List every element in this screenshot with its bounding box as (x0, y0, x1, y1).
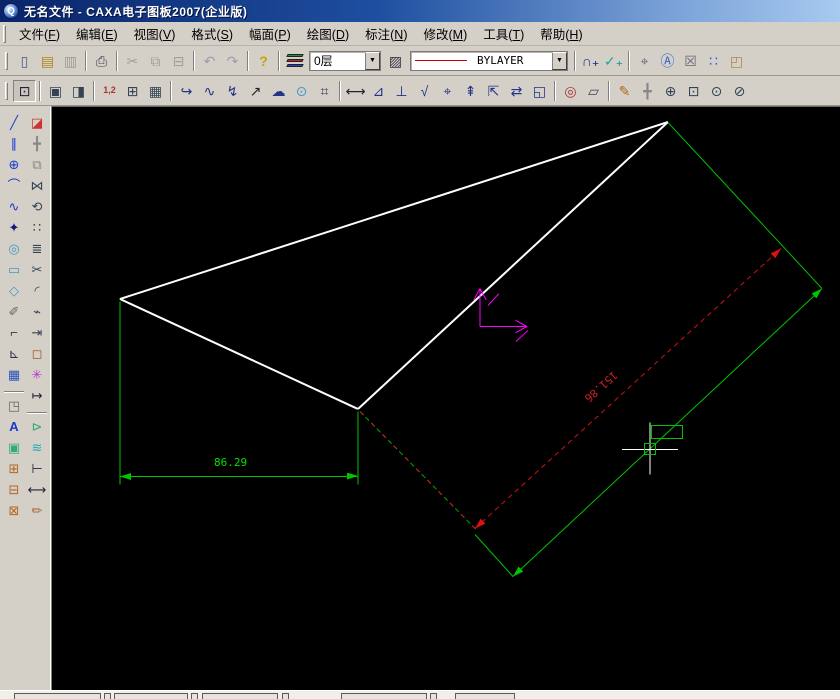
mirror-tool-button[interactable]: ⋈ (26, 175, 48, 196)
app-icon: Q (3, 3, 19, 19)
trim-tool-button[interactable]: ✂ (26, 259, 48, 280)
block-tool-button[interactable]: ▣ (3, 437, 25, 458)
toolbar-separator (93, 81, 95, 101)
menu-format[interactable]: 格式(S) (183, 21, 241, 46)
tool-group-separator (27, 406, 47, 413)
block-move-tool-button[interactable]: ⊳ (26, 416, 48, 437)
layer-change-tool-button[interactable]: ≋ (26, 437, 48, 458)
menu-view[interactable]: 视图(V) (126, 21, 184, 46)
zoom-check-button[interactable]: ◎ (559, 80, 582, 102)
linear-dim-button[interactable]: ⟷ (344, 80, 367, 102)
arrow-tool-button[interactable]: ↗ (244, 80, 267, 102)
zoom-in-button[interactable]: ⊕ (659, 80, 682, 102)
status-button[interactable] (430, 693, 437, 699)
dim-style-button[interactable]: 1,2 (98, 80, 121, 102)
page-preview-button[interactable]: ◰ (725, 50, 748, 72)
toolbar-separator (247, 51, 249, 71)
toolbar-separator (39, 81, 41, 101)
section-symbol-button[interactable]: ⇱ (482, 80, 505, 102)
stretch-tool-button[interactable]: ↦ (26, 385, 48, 406)
toolbar-separator (628, 51, 630, 71)
modify-tool-column: ◪╋⧉⋈⟲∷≣✂◜⌁⇥◻✳↦⊳≋⊢⟷✏ (26, 112, 48, 690)
sketch-pen-button[interactable]: ✎ (613, 80, 636, 102)
status-button[interactable] (104, 693, 111, 699)
status-button[interactable] (202, 693, 278, 699)
menu-help[interactable]: 帮助(H) (532, 21, 590, 46)
menu-tools[interactable]: 工具(T) (475, 21, 532, 46)
pick-box (644, 443, 656, 455)
zoom-window-button[interactable]: ⊡ (682, 80, 705, 102)
window-title: 无名文件 - CAXA电子图板2007(企业版) (24, 3, 247, 20)
fit-view-button[interactable]: ⊡ (13, 80, 36, 102)
toolbar-separator (608, 81, 610, 101)
save-file-button[interactable]: ▥ (59, 50, 82, 72)
menu-items: 文件(F)编辑(E)视图(V)格式(S)幅面(P)绘图(D)标注(N)修改(M)… (11, 21, 591, 46)
layer-combo-value: 0层 (310, 52, 365, 69)
sheet-button[interactable]: ▦ (144, 80, 167, 102)
parallel-line-tool-button[interactable]: ∥ (3, 133, 25, 154)
toolbar-separator (170, 81, 172, 101)
arc-tool-button[interactable]: ⌒ (3, 175, 25, 196)
drawing-canvas[interactable]: 86.29151.86 (52, 106, 840, 690)
roughness-button[interactable]: √ (413, 80, 436, 102)
status-button[interactable] (114, 693, 188, 699)
axis-tick-stroke[interactable] (488, 293, 500, 306)
menubar-grip[interactable] (3, 25, 6, 43)
weld-symbol-button[interactable]: ⇞ (459, 80, 482, 102)
ellipse-tool-button[interactable]: ◎ (3, 238, 25, 259)
toolbar-separator (339, 81, 341, 101)
fillet-tool-button[interactable]: ◜ (26, 280, 48, 301)
tool-group-separator (4, 385, 24, 392)
linetype-combo[interactable]: BYLAYER▼ (410, 51, 568, 71)
layer-manager-button[interactable] (283, 50, 306, 72)
block-create-tool-button[interactable]: ⊞ (3, 458, 25, 479)
dim-arrow-left (120, 473, 131, 480)
text-tool-button[interactable]: A (3, 416, 25, 437)
rectangle-tool-button[interactable]: ▭ (3, 259, 25, 280)
status-button[interactable] (282, 693, 289, 699)
toolbar2-grip[interactable] (5, 82, 8, 100)
erase-tool-button[interactable]: ◪ (26, 112, 48, 133)
hatch-pen-tool-button[interactable]: ✐ (3, 301, 25, 322)
rotate-tool-button[interactable]: ⟲ (26, 196, 48, 217)
status-button[interactable] (341, 693, 427, 699)
measure-button[interactable]: ▱ (582, 80, 605, 102)
axis-marker-horizontal[interactable] (480, 326, 527, 327)
zigzag-line-button[interactable]: ↯ (221, 80, 244, 102)
polyline-hook-button[interactable]: ↪ (175, 80, 198, 102)
point-tool-button[interactable]: ✦ (3, 217, 25, 238)
mixed-dash-extension[interactable] (360, 411, 478, 531)
zoom-text-button[interactable]: Ⓐ (656, 50, 679, 72)
toolbar-separator (574, 51, 576, 71)
menu-paper[interactable]: 幅面(P) (241, 21, 299, 46)
circle-tool-button[interactable]: ⊕ (3, 154, 25, 175)
node-edit-button[interactable]: ∩₊ (579, 50, 602, 72)
align-dim-tool-button[interactable]: ⊢ (26, 458, 48, 479)
title-block-button[interactable]: ◨ (67, 80, 90, 102)
open-file-button[interactable]: ▤ (36, 50, 59, 72)
new-file-button[interactable]: ▯ (13, 50, 36, 72)
toolbar-separator (116, 51, 118, 71)
frame-settings-button[interactable]: ▣ (44, 80, 67, 102)
toolbar1-grip[interactable] (5, 52, 8, 70)
copy-tool-button[interactable]: ⧉ (26, 154, 48, 175)
axis-marker-vertical[interactable] (480, 288, 481, 326)
left-tool-panel: ╱∥⊕⌒∿✦◎▭◇✐⌐⊾▦◳A▣⊞⊟⊠ ◪╋⧉⋈⟲∷≣✂◜⌁⇥◻✳↦⊳≋⊢⟷✏ (0, 106, 52, 690)
triangle-edge-left[interactable] (120, 298, 359, 410)
linetype-combo-dropdown-button[interactable]: ▼ (552, 52, 567, 70)
dim-edit-button[interactable]: ⇄ (505, 80, 528, 102)
help-button[interactable]: ? (252, 50, 275, 72)
symbol-tool-button[interactable]: ⌗ (313, 80, 336, 102)
print-button[interactable]: ⎙ (90, 50, 113, 72)
array-tool-button[interactable]: ∷ (26, 217, 48, 238)
undo-button[interactable]: ↶ (198, 50, 221, 72)
cloud-line-button[interactable]: ☁ (267, 80, 290, 102)
dim-text-preview-box[interactable] (651, 425, 683, 439)
status-button[interactable] (14, 693, 101, 699)
offset-tool-button[interactable]: ≣ (26, 238, 48, 259)
zoom-prev-button[interactable]: ⊙ (705, 80, 728, 102)
linetype-combo-value: BYLAYER (473, 54, 552, 67)
tolerance-button[interactable]: ⌖ (436, 80, 459, 102)
menu-draw[interactable]: 绘图(D) (299, 21, 357, 46)
layer-combo-dropdown-button[interactable]: ▼ (365, 52, 380, 70)
polygon-tool-button[interactable]: ◇ (3, 280, 25, 301)
spline-tool-button[interactable]: ∿ (3, 196, 25, 217)
dim-text-horizontal[interactable]: 86.29 (214, 456, 247, 469)
menu-file[interactable]: 文件(F) (11, 21, 68, 46)
toolbar-separator (554, 81, 556, 101)
redo-button[interactable]: ↷ (221, 50, 244, 72)
pan-hand-button[interactable]: ╋ (636, 80, 659, 102)
paste-button[interactable]: ⊟ (167, 50, 190, 72)
vector-edit-button[interactable]: ✓₊ (602, 50, 625, 72)
wave-line-button[interactable]: ∿ (198, 80, 221, 102)
layer-combo[interactable]: 0层▼ (309, 51, 381, 71)
dim-review-button[interactable]: ◱ (528, 80, 551, 102)
menu-bar: 文件(F)编辑(E)视图(V)格式(S)幅面(P)绘图(D)标注(N)修改(M)… (0, 22, 840, 46)
triangle-edge-top[interactable] (120, 121, 669, 300)
aligned-extension-line-top[interactable] (668, 122, 823, 289)
box-select-tool-button[interactable]: ◻ (26, 343, 48, 364)
menu-dimension[interactable]: 标注(N) (357, 21, 415, 46)
status-button[interactable] (191, 693, 198, 699)
toolbar-separator (278, 51, 280, 71)
refresh-view-button[interactable]: ∷ (702, 50, 725, 72)
linetype-sample (415, 60, 467, 61)
status-button[interactable] (455, 693, 515, 699)
line-tool-button[interactable]: ╱ (3, 112, 25, 133)
pan-view-button[interactable]: ⌖ (633, 50, 656, 72)
bottom-strip (0, 690, 840, 699)
red-dash-dimension-line[interactable] (475, 248, 782, 529)
toolbar1-items: ▯▤▥⎙✂⧉⊟↶↷?0层▼▨BYLAYER▼∩₊✓₊⌖Ⓐ☒∷◰ (13, 50, 748, 72)
extension-line-right[interactable] (358, 411, 359, 484)
drawing-toolbar: ⊡▣◨1,2⊞▦↪∿↯↗☁⊙⌗⟷⊿⊥√⌖⇞⇱⇄◱◎▱✎╋⊕⊡⊙⊘ (0, 76, 840, 106)
move-tool-button[interactable]: ╋ (26, 133, 48, 154)
toolbar-separator (193, 51, 195, 71)
toolbar-separator (85, 51, 87, 71)
dimension-line-horizontal[interactable] (120, 476, 358, 477)
menu-modify[interactable]: 修改(M) (415, 21, 475, 46)
title-bar[interactable]: Q 无名文件 - CAXA电子图板2007(企业版) (0, 0, 840, 22)
axis-tool-button[interactable]: ⊾ (3, 343, 25, 364)
toolbar2-items: ⊡▣◨1,2⊞▦↪∿↯↗☁⊙⌗⟷⊿⊥√⌖⇞⇱⇄◱◎▱✎╋⊕⊡⊙⊘ (13, 80, 751, 102)
break-tool-button[interactable]: ⌁ (26, 301, 48, 322)
view-rotate-button[interactable]: ☒ (679, 50, 702, 72)
block-attr-tool-button[interactable]: ⊟ (3, 479, 25, 500)
local-zoom-tool-button[interactable]: ◳ (3, 395, 25, 416)
extension-line-left[interactable] (120, 301, 121, 484)
sketch-circle-button[interactable]: ⊙ (290, 80, 313, 102)
format-brush-tool-button[interactable]: ✏ (26, 500, 48, 521)
triangle-edge-diagonal[interactable] (357, 121, 668, 409)
linetype-manager-button[interactable]: ▨ (384, 50, 407, 72)
draw-tool-column: ╱∥⊕⌒∿✦◎▭◇✐⌐⊾▦◳A▣⊞⊟⊠ (3, 112, 25, 690)
dim-arrow-right (347, 473, 358, 480)
aligned-extension-line-bottom[interactable] (475, 534, 514, 577)
standard-toolbar: ▯▤▥⎙✂⧉⊟↶↷?0层▼▨BYLAYER▼∩₊✓₊⌖Ⓐ☒∷◰ (0, 46, 840, 76)
caxa-window: { "window": { "title": "无名文件 - CAXA电子图板2… (0, 0, 840, 699)
copy-button[interactable]: ⧉ (144, 50, 167, 72)
extend-tool-button[interactable]: ⇥ (26, 322, 48, 343)
polyline-tool-button[interactable]: ⌐ (3, 322, 25, 343)
crosshatch-tool-button[interactable]: ▦ (3, 364, 25, 385)
block-insert-tool-button[interactable]: ⊠ (3, 500, 25, 521)
table-button[interactable]: ⊞ (121, 80, 144, 102)
dim-arrows-tool-button[interactable]: ⟷ (26, 479, 48, 500)
layers-icon (287, 54, 303, 67)
zoom-dynamic-button[interactable]: ⊘ (728, 80, 751, 102)
datum-dim-button[interactable]: ⊥ (390, 80, 413, 102)
menu-edit[interactable]: 编辑(E) (68, 21, 126, 46)
angular-dim-button[interactable]: ⊿ (367, 80, 390, 102)
explode-tool-button[interactable]: ✳ (26, 364, 48, 385)
cut-button[interactable]: ✂ (121, 50, 144, 72)
